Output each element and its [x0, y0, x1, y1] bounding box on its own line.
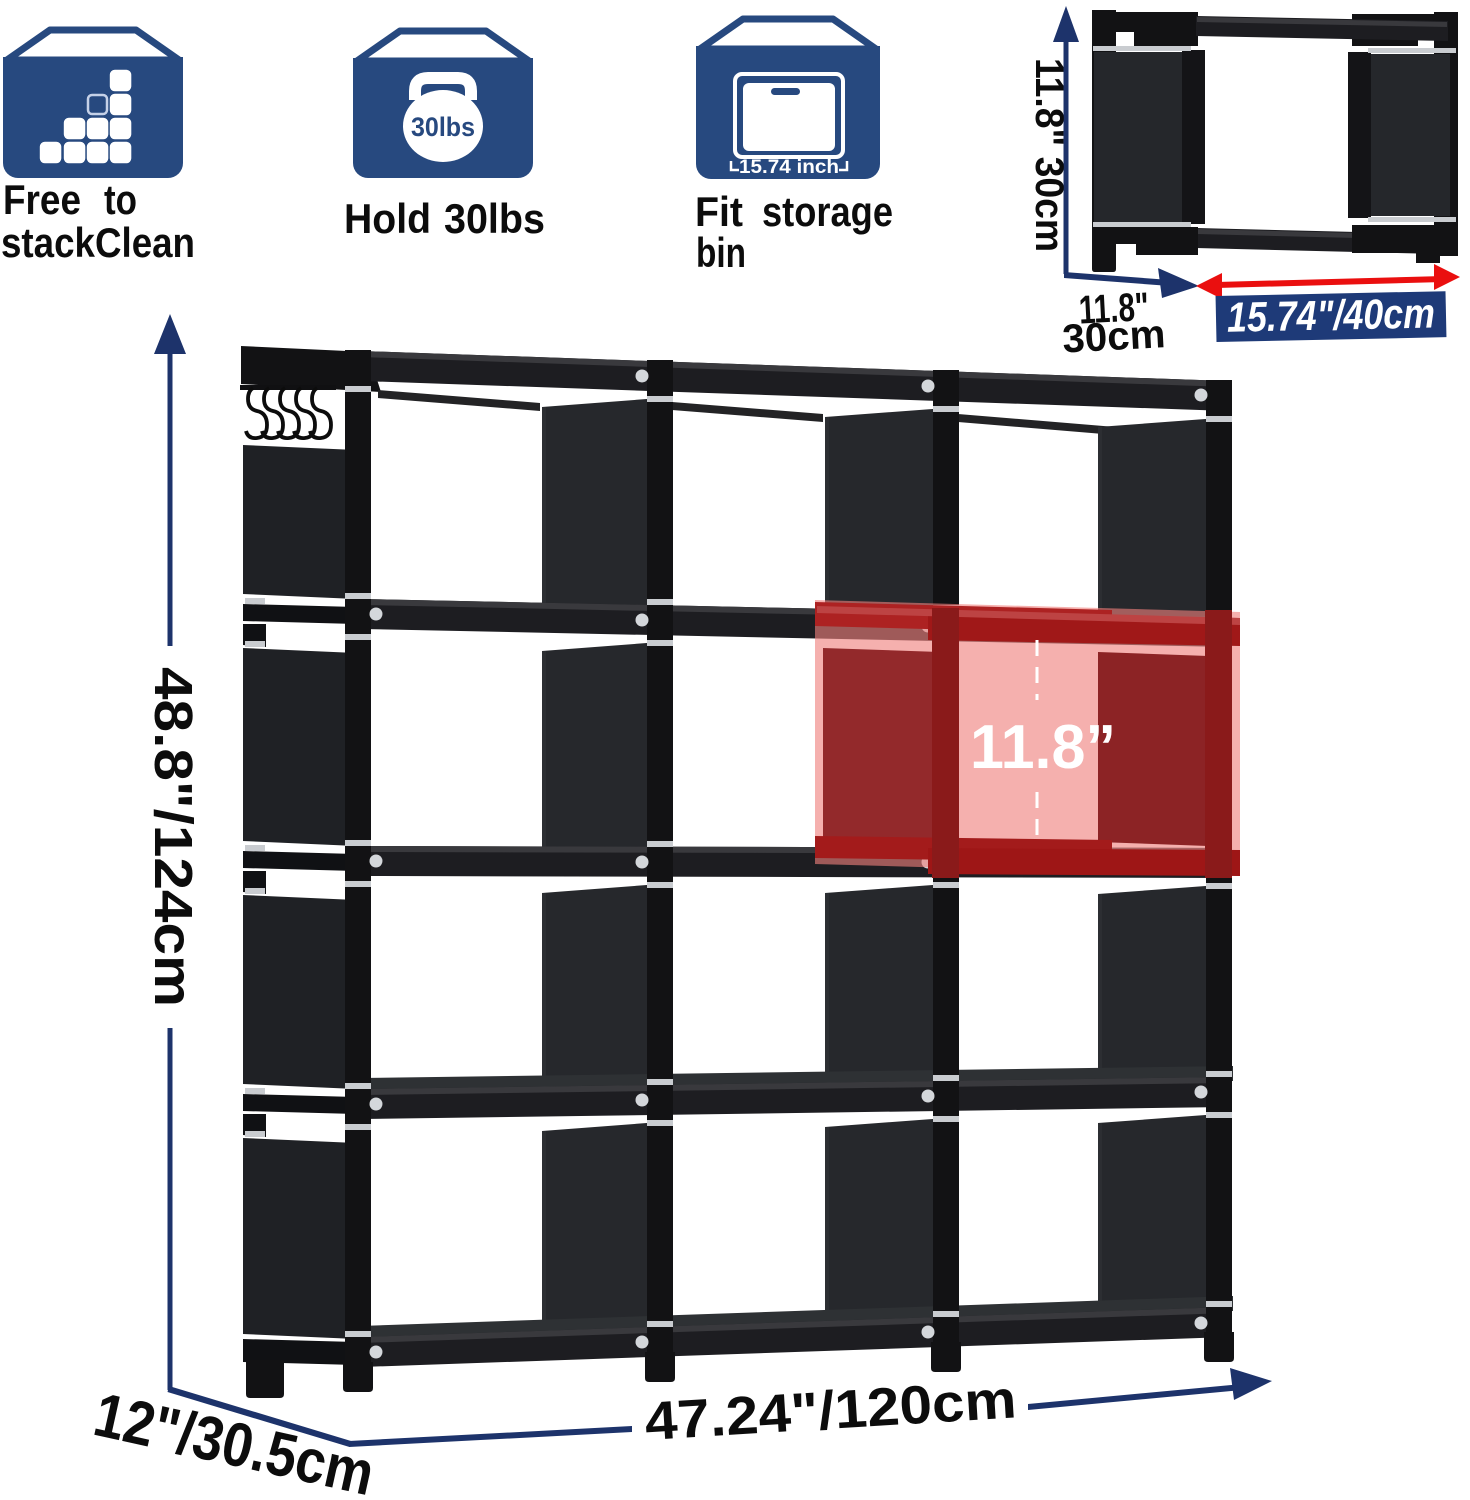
svg-text:30lbs: 30lbs: [411, 112, 475, 142]
svg-text:11.8" 30cm: 11.8" 30cm: [1027, 58, 1071, 252]
svg-text:to: to: [104, 176, 137, 223]
svg-text:Hold: Hold: [344, 195, 431, 242]
svg-text:Free: Free: [3, 176, 81, 223]
svg-text:bin: bin: [696, 229, 746, 276]
svg-text:stackClean: stackClean: [1, 219, 195, 266]
svg-text:11.8”: 11.8”: [970, 713, 1116, 782]
svg-text:48.8"/124cm: 48.8"/124cm: [143, 667, 203, 1007]
svg-text:Fit: Fit: [695, 188, 743, 235]
svg-text:30cm: 30cm: [1061, 312, 1166, 361]
svg-text:storage: storage: [762, 188, 893, 235]
svg-text:15.74"/40cm: 15.74"/40cm: [1226, 289, 1435, 340]
svg-text:15.74 inch: 15.74 inch: [739, 157, 839, 178]
svg-text:30lbs: 30lbs: [444, 195, 545, 242]
